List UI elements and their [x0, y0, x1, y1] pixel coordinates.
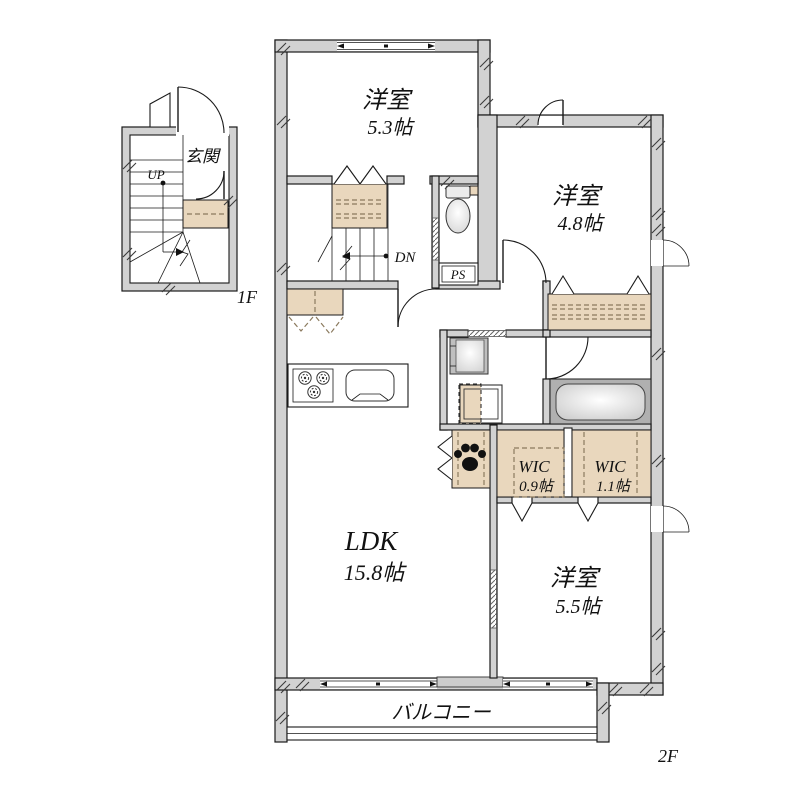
- ldk: LDK 15.8帖: [287, 289, 408, 585]
- balcony: バルコニー: [287, 702, 597, 740]
- window-balcony-bedroom55: [503, 679, 593, 689]
- wall-core-vertical: [478, 115, 497, 283]
- bathroom-door: [546, 337, 588, 379]
- toilet-tank: [446, 186, 470, 198]
- wic-11: WIC 1.1帖: [572, 430, 651, 521]
- ldk-name: LDK: [344, 526, 400, 556]
- window-balcony-ldk: [320, 679, 437, 689]
- bedroom55-sliding-door: [491, 570, 497, 628]
- wic-divider-wall: [564, 428, 572, 497]
- wic09-area: 0.9帖: [519, 478, 555, 495]
- closet-bifold-left: [334, 166, 360, 184]
- wall-right-a: [478, 40, 490, 127]
- washroom: [450, 338, 502, 424]
- vanity-bowl: [456, 340, 484, 372]
- entrance-opening: [176, 126, 229, 136]
- bedroom55-area: 5.5帖: [556, 596, 604, 618]
- bedroom48-area: 4.8帖: [558, 213, 606, 235]
- entrance-label: 玄関: [185, 147, 221, 166]
- washroom-sliding-door: [468, 331, 506, 337]
- balcony-label: バルコニー: [391, 702, 492, 724]
- pet-closet-bifold-top: [438, 436, 452, 458]
- bedroom48: 洋室 4.8帖: [503, 183, 651, 330]
- floor-plan-canvas: 玄関 UP 1F: [0, 0, 800, 800]
- wic-09: WIC 0.9帖: [497, 430, 564, 521]
- dn-arrow: [340, 246, 388, 270]
- kitchen-sink: [346, 370, 394, 401]
- floor2-label: 2F: [658, 746, 679, 766]
- outward-door-top-b: [538, 100, 563, 126]
- pet-closet: [438, 430, 490, 488]
- entrance-side-window: [150, 93, 170, 127]
- bathroom: [546, 337, 651, 424]
- toilet-room: [446, 186, 478, 233]
- casement-window-east-upper: [651, 240, 689, 266]
- ldk-door: [398, 289, 436, 327]
- floor1-unit: 玄関 UP 1F: [122, 87, 258, 307]
- wic11-area: 1.1帖: [596, 478, 632, 495]
- stair-closet: [332, 184, 387, 228]
- ldk-area: 15.8帖: [344, 560, 408, 585]
- window-top: [337, 41, 435, 51]
- bedroom48-closet: [548, 294, 651, 330]
- wic11-door: [578, 503, 598, 521]
- wic09-door: [512, 503, 532, 521]
- wall-top-b: [478, 115, 663, 127]
- kitchen-counter: [288, 364, 408, 407]
- bedroom55-name: 洋室: [550, 565, 601, 592]
- bedroom53-area: 5.3帖: [368, 117, 416, 139]
- dn-label: DN: [394, 250, 417, 266]
- wall-left: [275, 40, 287, 742]
- pipe-space: PS: [439, 263, 478, 285]
- toilet-sliding-door: [433, 218, 439, 260]
- casement-window-east-lower: [651, 506, 689, 532]
- wall-right-b: [651, 115, 663, 695]
- floor1-label: 1F: [237, 287, 258, 307]
- closet48-bifold-left: [552, 276, 574, 294]
- floor-plan-page: 玄関 UP 1F: [0, 0, 800, 800]
- bathtub: [556, 384, 645, 420]
- bedroom48-name: 洋室: [552, 183, 603, 210]
- ldk-bedroom55-partition: [490, 425, 497, 678]
- pet-closet-bifold-bottom: [438, 458, 452, 480]
- wic09-name: WIC: [518, 457, 550, 476]
- closet-bifold-right: [360, 166, 386, 184]
- toilet-shelf: [470, 186, 478, 195]
- ps-label: PS: [450, 267, 466, 282]
- closet48-bifold-right: [627, 276, 649, 294]
- bedroom48-door: [503, 240, 546, 283]
- toilet-bowl: [446, 199, 470, 233]
- up-label: UP: [147, 167, 164, 182]
- washer-pan-shade: [459, 384, 481, 424]
- wic11-name: WIC: [594, 457, 626, 476]
- bedroom53-name: 洋室: [362, 87, 413, 114]
